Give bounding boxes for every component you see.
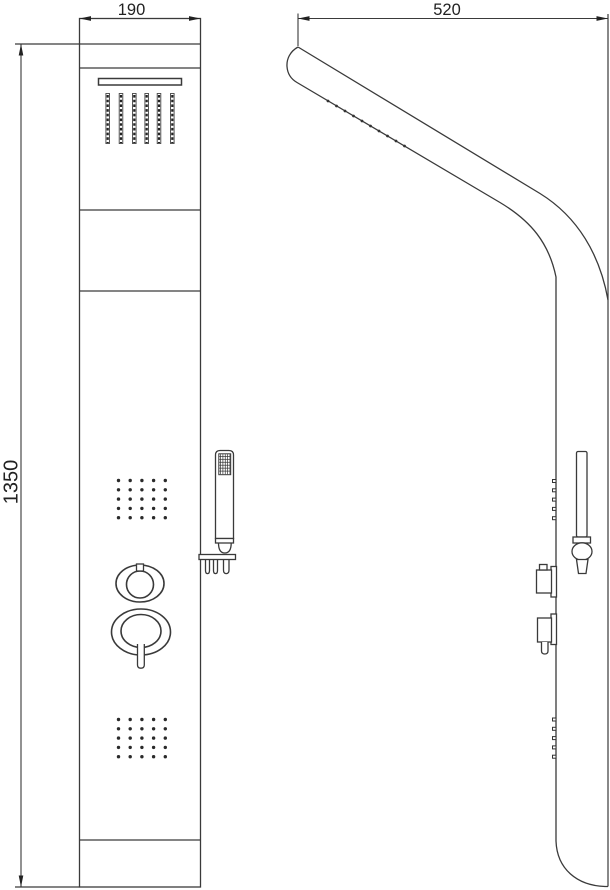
- body-jet-dot: [152, 718, 155, 721]
- knob-body-side: [538, 618, 552, 642]
- dimension-arrow: [189, 16, 201, 21]
- jet-nozzle-tick: [553, 737, 557, 740]
- knob-side-lower: [538, 614, 557, 654]
- jet-nozzle-tick: [553, 507, 557, 510]
- holder-cup: [219, 543, 232, 553]
- body-jet-dot: [164, 755, 167, 758]
- technical-drawing-page: 190 520 1350: [0, 0, 610, 890]
- body-jet-dot: [140, 755, 143, 758]
- body-jet-dot: [129, 497, 132, 500]
- dimension-height-label: 1350: [1, 460, 23, 505]
- overhead-rain-slot: [99, 79, 182, 86]
- spray-grid-bar: [219, 462, 230, 463]
- body-jet-dot: [164, 488, 167, 491]
- dimension-depth-label: 520: [433, 1, 461, 19]
- body-jet-dot: [152, 497, 155, 500]
- body-jet-dot: [164, 516, 167, 519]
- head-nozzle-dot: [327, 100, 330, 103]
- body-jet-dot: [117, 507, 120, 510]
- front-view: [15, 19, 236, 888]
- holder-prong: [214, 560, 218, 574]
- body-jet-dot: [129, 479, 132, 482]
- body-jet-dot: [152, 727, 155, 730]
- jet-nozzle-tick: [553, 718, 557, 721]
- wand-side: [577, 452, 588, 538]
- body-jet-dot: [140, 497, 143, 500]
- body-jet-dot: [117, 516, 120, 519]
- jet-nozzle-tick: [553, 727, 557, 730]
- body-jet-dot: [164, 479, 167, 482]
- dimension-arrow: [19, 876, 24, 888]
- dimension-arrow: [19, 44, 24, 56]
- body-jet-dot: [140, 516, 143, 519]
- body-jet-dot: [117, 718, 120, 721]
- body-jet-dot: [140, 507, 143, 510]
- body-jet-dot: [152, 507, 155, 510]
- jet-nozzle-tick: [553, 480, 557, 483]
- dimension-depth: 520: [298, 1, 608, 46]
- body-jet-dot: [129, 516, 132, 519]
- body-jet-dot: [164, 718, 167, 721]
- holder-bracket: [199, 555, 236, 560]
- spray-grid-bar: [219, 465, 230, 466]
- body-jet-dot: [117, 479, 120, 482]
- panel-outline: [80, 19, 201, 888]
- jet-nozzle-tick: [553, 746, 557, 749]
- hand-shower-tip: [216, 539, 234, 544]
- body-jet-dot: [117, 727, 120, 730]
- body-jet-dot: [152, 755, 155, 758]
- jet-nozzle-tick: [553, 498, 557, 501]
- body-jet-dot: [164, 507, 167, 510]
- body-jet-dot: [117, 488, 120, 491]
- body-jet-dot: [152, 736, 155, 739]
- jet-nozzle-tick: [553, 517, 557, 520]
- body-jet-dot: [117, 736, 120, 739]
- upper-body-jet-grid: [117, 479, 167, 520]
- head-nozzle-dot: [395, 140, 398, 143]
- head-nozzle-dot: [352, 115, 355, 118]
- body-jet-dot: [129, 488, 132, 491]
- body-jet-dot: [140, 488, 143, 491]
- body-jet-dot: [164, 736, 167, 739]
- body-jet-dot: [164, 497, 167, 500]
- body-jet-dot: [140, 736, 143, 739]
- body-jet-dot: [117, 497, 120, 500]
- hand-shower-side: [572, 452, 592, 574]
- body-jet-dot: [129, 507, 132, 510]
- body-jet-dot: [129, 746, 132, 749]
- mixer-knob-with-lever: [112, 609, 171, 668]
- head-nozzle-dot: [361, 120, 364, 123]
- jet-nozzle-tick: [553, 755, 557, 758]
- holder-collar-side: [573, 537, 591, 543]
- spray-grid-bar: [219, 459, 230, 460]
- head-nozzle-dot: [378, 130, 381, 133]
- head-top-profile: [298, 47, 608, 300]
- body-jet-dot: [152, 516, 155, 519]
- knob-notch: [137, 564, 144, 571]
- jet-nozzle-tick: [553, 489, 557, 492]
- spray-grid-bar: [219, 456, 230, 457]
- body-jet-dot: [152, 746, 155, 749]
- body-jet-dot: [152, 488, 155, 491]
- body-jet-dot: [140, 479, 143, 482]
- hand-shower: [199, 451, 236, 574]
- lower-body-jet-grid: [117, 718, 167, 759]
- spray-grid-bar: [219, 471, 230, 472]
- dimension-arrow: [298, 16, 310, 21]
- head-nozzle-dot: [344, 110, 347, 113]
- hose-connector-side: [577, 560, 589, 574]
- head-nozzle-dot: [403, 145, 406, 148]
- knob-body-side: [537, 570, 552, 593]
- side-view: [287, 14, 608, 887]
- holder-knob-side: [572, 543, 592, 560]
- body-jet-dot: [117, 746, 120, 749]
- holder-prong: [206, 560, 210, 574]
- round-diverter-knob: [116, 564, 164, 602]
- body-jet-dot: [140, 718, 143, 721]
- body-jet-dot: [152, 479, 155, 482]
- body-jet-dot: [129, 718, 132, 721]
- knob-notch-side: [540, 565, 548, 571]
- spray-grid-bar: [219, 468, 230, 469]
- body-jet-dot: [140, 727, 143, 730]
- head-nozzle-dot: [386, 135, 389, 138]
- shower-panel-drawing: 190 520 1350: [0, 0, 610, 890]
- body-jet-dot: [164, 746, 167, 749]
- body-jet-dot: [117, 755, 120, 758]
- lever-side: [542, 642, 549, 654]
- body-jet-dot: [140, 746, 143, 749]
- knob-inner: [127, 571, 154, 598]
- knob-inner: [121, 615, 161, 648]
- body-jet-dot: [129, 755, 132, 758]
- holder-prong: [224, 560, 230, 574]
- body-jet-dot: [164, 727, 167, 730]
- dimension-arrow: [80, 16, 92, 21]
- dimension-height: 1350: [1, 44, 24, 887]
- knob-side-upper: [537, 565, 557, 598]
- dimension-width-label: 190: [118, 1, 146, 19]
- head-front-profile: [287, 47, 608, 887]
- body-jet-dot: [129, 736, 132, 739]
- dimension-arrow: [597, 16, 609, 21]
- head-nozzle-dot: [335, 105, 338, 108]
- mixer-lever: [138, 644, 145, 668]
- body-jet-dot: [129, 727, 132, 730]
- rain-nozzle-columns: [106, 94, 174, 144]
- head-nozzle-dot: [369, 125, 372, 128]
